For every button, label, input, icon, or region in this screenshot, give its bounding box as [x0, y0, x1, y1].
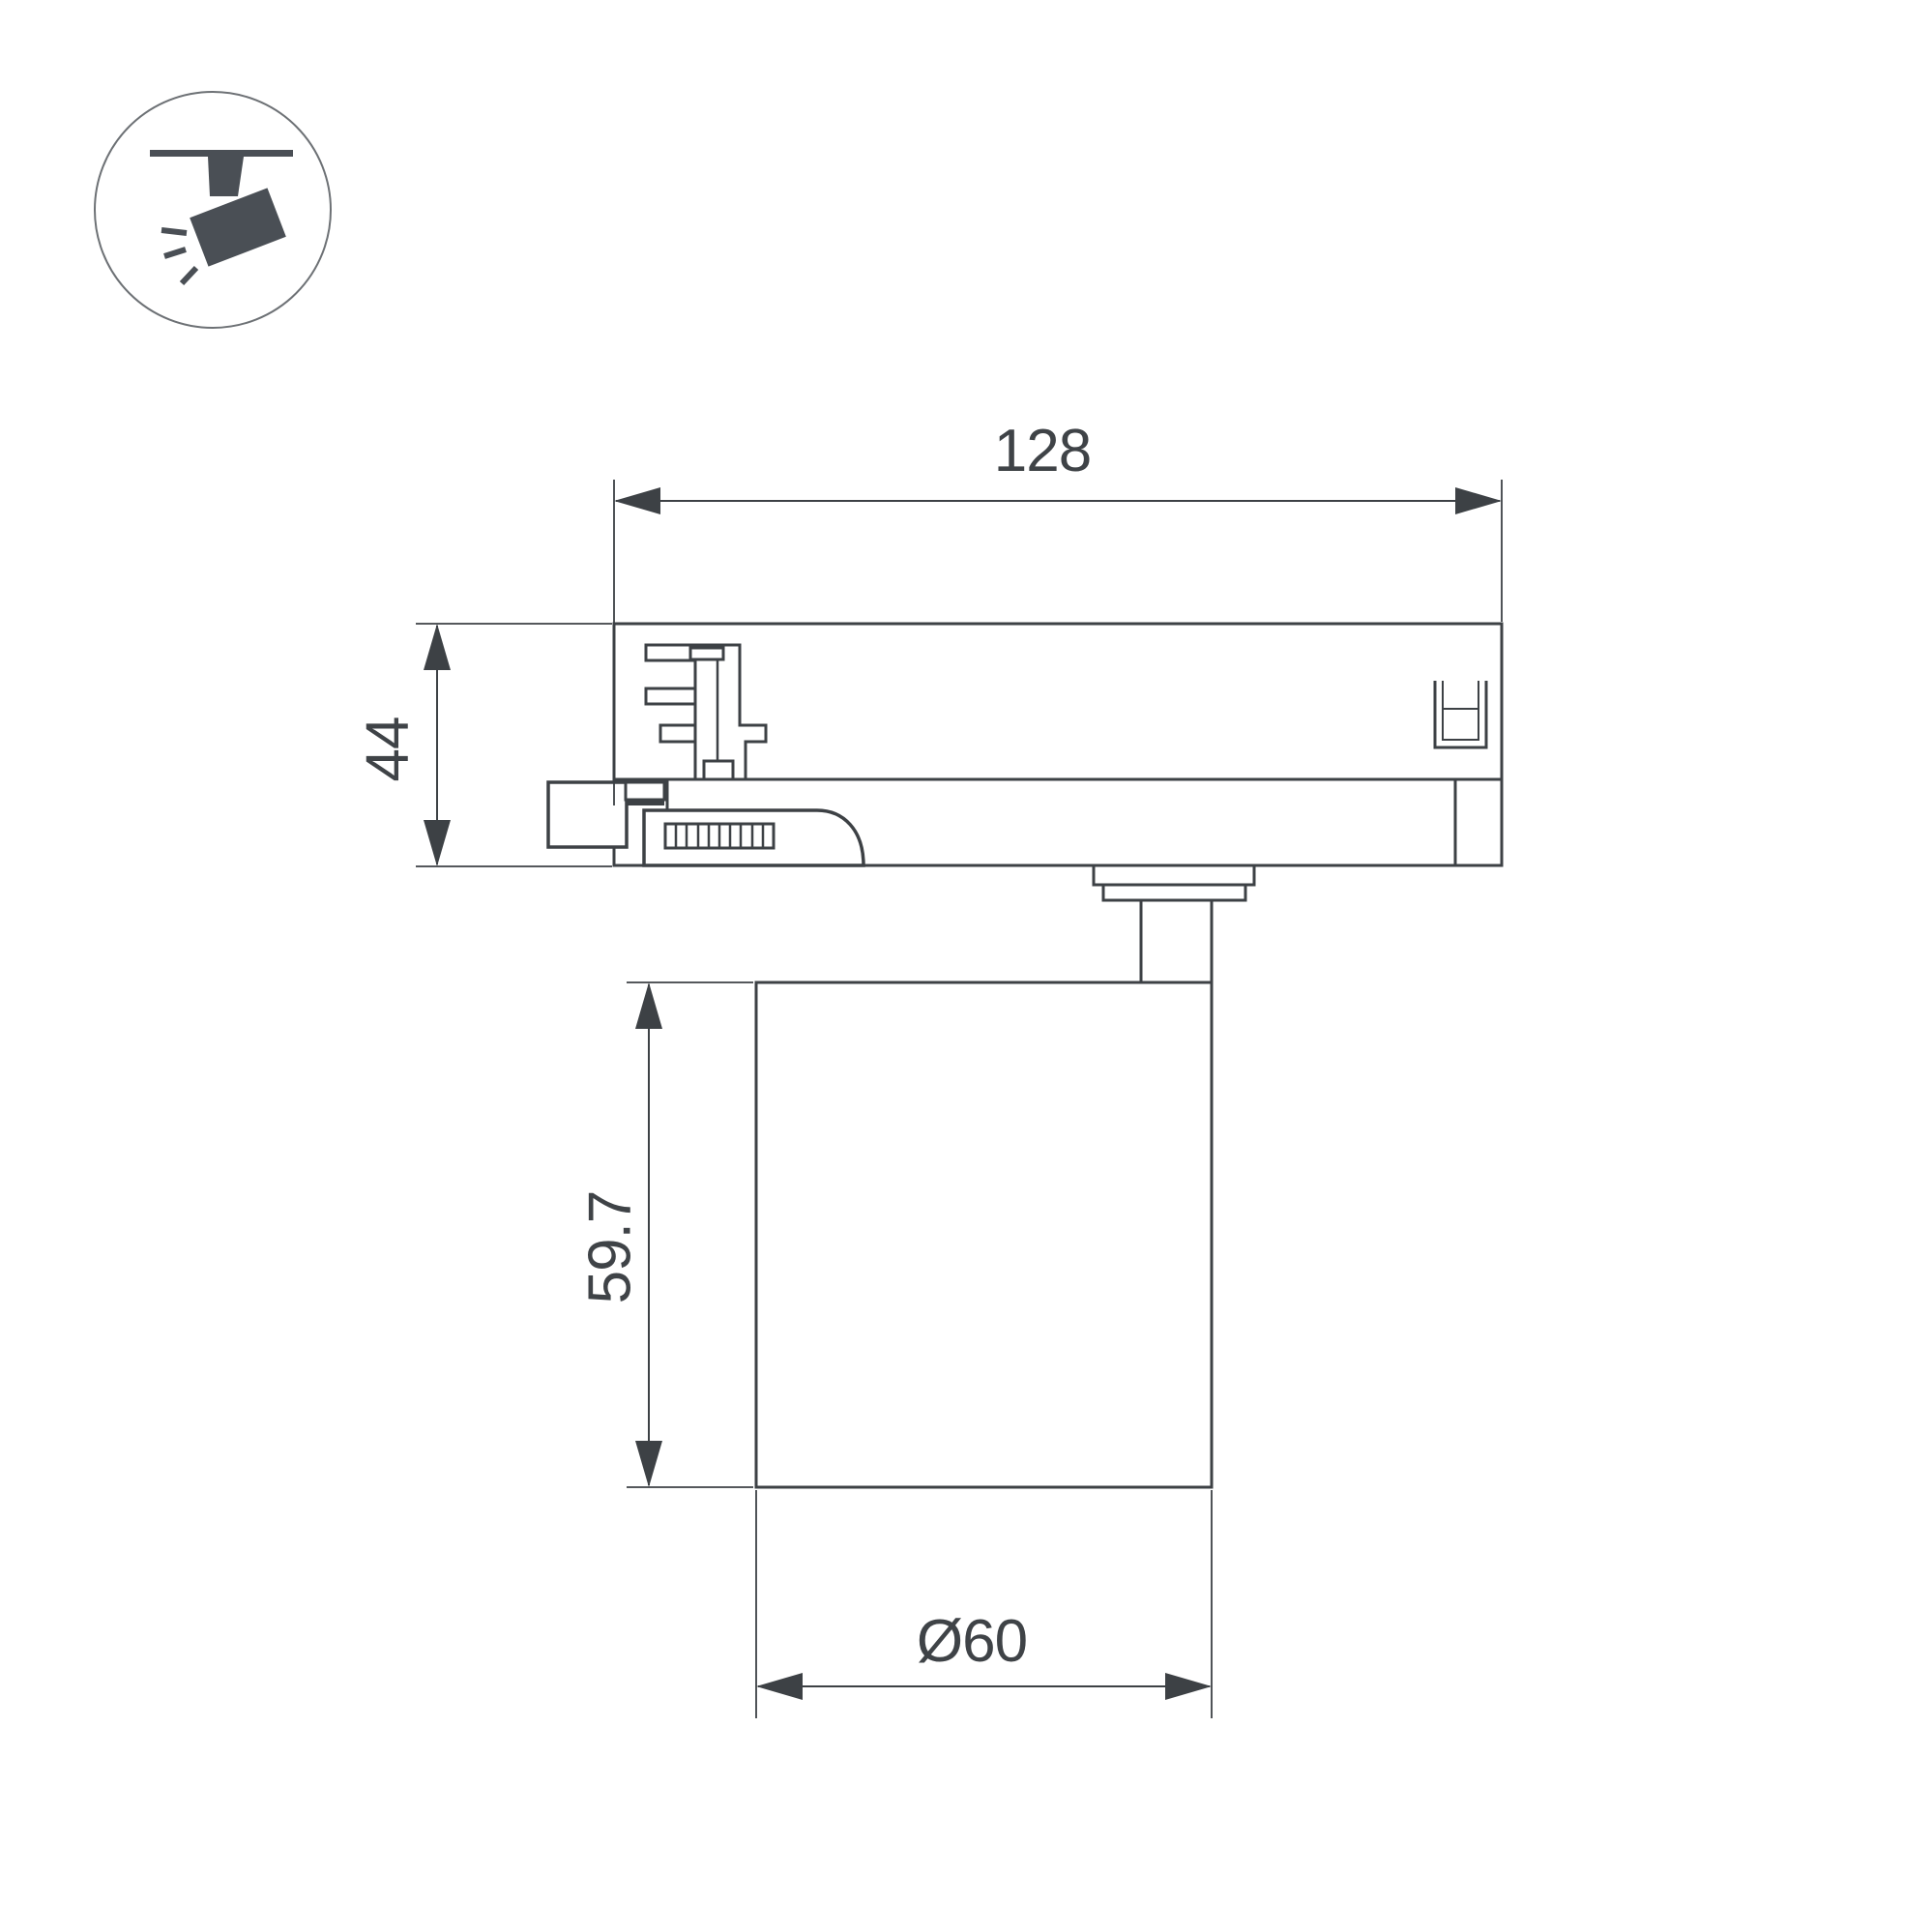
- dimension-label: 128: [994, 418, 1091, 484]
- dimension-label: Ø60: [917, 1608, 1027, 1675]
- icon-stem: [208, 157, 244, 196]
- arrowhead-right: [1165, 1673, 1212, 1700]
- track-adapter: [548, 624, 1502, 865]
- arrowhead-bottom: [424, 820, 451, 866]
- icon-light-rays: [161, 230, 196, 283]
- latch-detail-box: [626, 782, 664, 800]
- dim-lamp-diameter: Ø60: [756, 1490, 1212, 1718]
- technical-drawing: 128 44 59.7 Ø60: [0, 0, 1932, 1932]
- contact-prong-middle: [646, 688, 695, 704]
- contact-prong-bottom: [660, 725, 695, 742]
- lamp-body: [756, 982, 1212, 1487]
- arrowhead-bottom: [635, 1441, 662, 1487]
- swivel-pedestal: [1094, 865, 1254, 982]
- contact-cap: [690, 648, 723, 659]
- arrowhead-right: [1455, 487, 1502, 514]
- dimension-label: 44: [355, 717, 422, 782]
- latch-detail-bar: [627, 801, 664, 805]
- arrowhead-left: [756, 1673, 803, 1700]
- track-spotlight-icon: [95, 92, 331, 328]
- contact-prong-top: [646, 645, 695, 660]
- contact-foot: [704, 761, 733, 779]
- arrowhead-left: [614, 487, 660, 514]
- icon-lamp-head: [190, 188, 286, 266]
- arrowhead-top: [635, 982, 662, 1029]
- pedestal-step-2: [1103, 885, 1245, 900]
- dimension-label: 59.7: [577, 1191, 644, 1304]
- icon-track-bar: [150, 150, 293, 157]
- dim-lamp-height: 59.7: [577, 982, 753, 1487]
- arrowhead-top: [424, 624, 451, 670]
- drawing-page: 128 44 59.7 Ø60: [0, 0, 1932, 1932]
- pedestal-step-1: [1094, 865, 1254, 885]
